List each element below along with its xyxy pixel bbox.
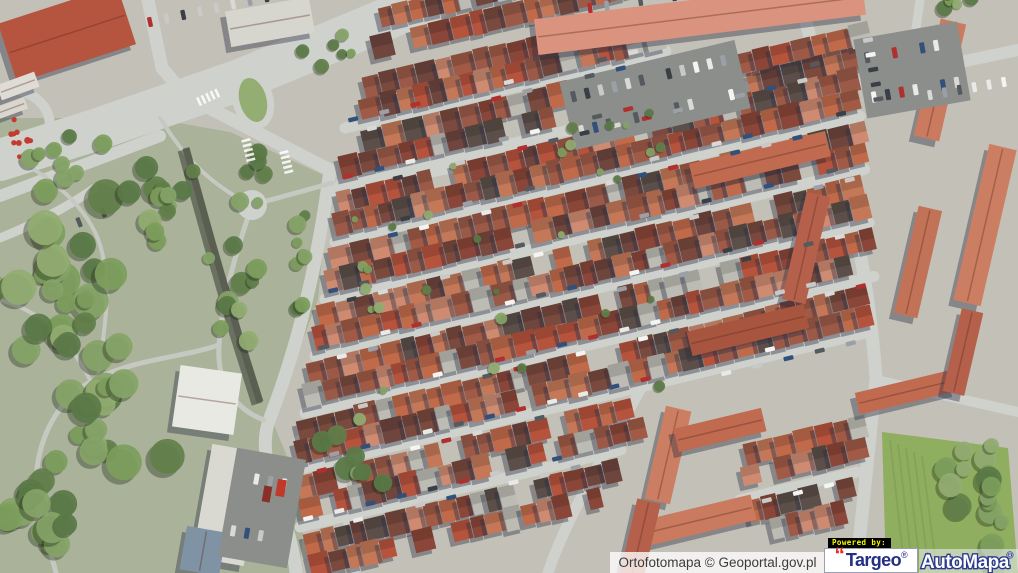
automapa-wordmark-svg: AutoMapa ® [919, 549, 1018, 573]
aerial-photo [0, 0, 1018, 573]
automapa-logo[interactable]: AutoMapa ® [919, 549, 1018, 573]
automapa-registered-mark: ® [1007, 551, 1013, 560]
attribution-bar: Ortofotomapa © Geoportal.gov.pl [610, 552, 825, 573]
map-viewport[interactable]: Ortofotomapa © Geoportal.gov.pl Powered … [0, 0, 1018, 573]
targeo-wordmark: Targeo [846, 550, 901, 571]
targeo-registered-mark: ® [901, 550, 908, 560]
automapa-wordmark: AutoMapa [921, 552, 1010, 573]
targeo-quote-mark: “ [834, 552, 845, 560]
attribution-text: Ortofotomapa © Geoportal.gov.pl [618, 555, 816, 570]
targeo-logo[interactable]: “ Targeo ® [824, 548, 918, 573]
